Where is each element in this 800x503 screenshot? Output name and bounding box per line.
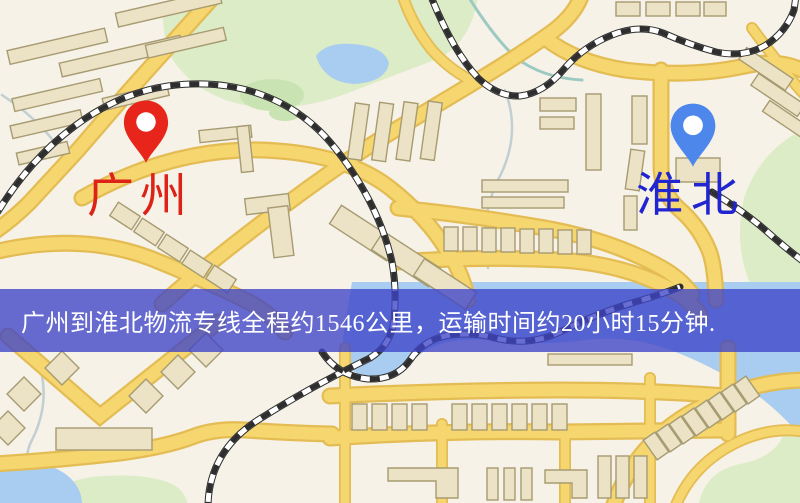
- route-info-banner: 广州到淮北物流专线全程约1546公里，运输时间约20小时15分钟.: [0, 289, 800, 352]
- route-info-text: 广州到淮北物流专线全程约1546公里，运输时间约20小时15分钟.: [0, 303, 716, 338]
- destination-label: 淮北: [636, 173, 746, 220]
- map-canvas: [0, 0, 800, 503]
- map-pin-icon: [666, 101, 720, 172]
- origin-marker-pin: [120, 96, 172, 170]
- map-screenshot: 广州 淮北 广州到淮北物流专线全程约1546公里，运输时间约20小时15分钟.: [0, 0, 800, 503]
- map-pin-icon: [120, 96, 172, 170]
- destination-marker-pin: [666, 101, 720, 172]
- origin-label: 广州: [87, 174, 193, 221]
